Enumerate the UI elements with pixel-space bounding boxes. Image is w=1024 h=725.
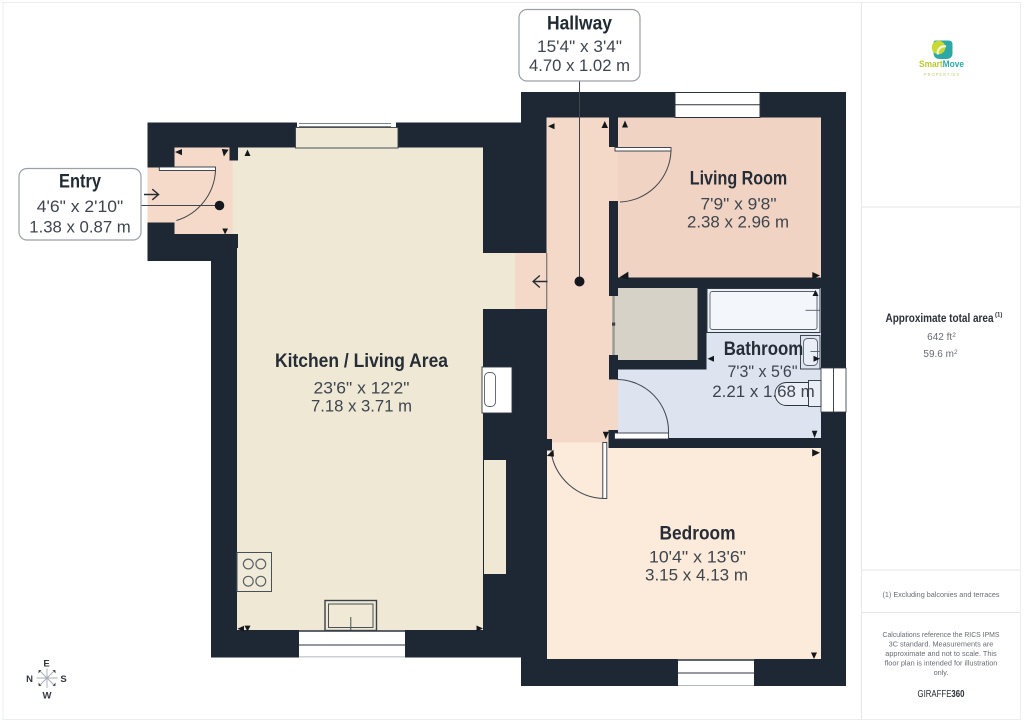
svg-text:7.18 x 3.71 m: 7.18 x 3.71 m: [311, 398, 412, 416]
svg-text:7'3" x 5'6": 7'3" x 5'6": [728, 363, 798, 381]
svg-text:Bathroom: Bathroom: [724, 339, 804, 360]
svg-text:2.21 x 1.68 m: 2.21 x 1.68 m: [712, 383, 815, 401]
svg-text:1.38 x 0.87 m: 1.38 x 0.87 m: [29, 219, 131, 237]
svg-text:only.: only.: [934, 668, 949, 677]
svg-text:3.15 x 4.13 m: 3.15 x 4.13 m: [645, 567, 748, 585]
svg-text:642 ft2: 642 ft2: [927, 332, 956, 344]
svg-text:10'4" x 13'6": 10'4" x 13'6": [649, 549, 746, 567]
svg-text:2.38 x 2.96 m: 2.38 x 2.96 m: [687, 214, 789, 232]
svg-text:Hallway: Hallway: [547, 14, 612, 35]
svg-text:SmartMove: SmartMove: [919, 59, 964, 69]
svg-text:Kitchen / Living Area: Kitchen / Living Area: [275, 351, 448, 372]
svg-text:S: S: [60, 674, 66, 685]
svg-text:floor plan is intended for ill: floor plan is intended for illustration: [885, 659, 998, 668]
svg-text:4'6" x 2'10": 4'6" x 2'10": [37, 198, 124, 216]
svg-text:Entry: Entry: [59, 172, 101, 193]
svg-text:Bedroom: Bedroom: [660, 524, 736, 545]
svg-text:GIRAFFE360: GIRAFFE360: [918, 689, 965, 700]
svg-text:P R O P E R T I E S: P R O P E R T I E S: [924, 72, 959, 77]
svg-text:15'4" x 3'4": 15'4" x 3'4": [537, 38, 622, 56]
svg-text:Living Room: Living Room: [690, 169, 788, 190]
svg-text:N: N: [26, 674, 33, 685]
svg-text:4.70 x 1.02 m: 4.70 x 1.02 m: [529, 57, 630, 75]
svg-text:3C standard. Measurements are: 3C standard. Measurements are: [889, 640, 994, 649]
svg-text:(1) Excluding balconies and te: (1) Excluding balconies and terraces: [883, 590, 1000, 599]
svg-text:W: W: [43, 691, 52, 702]
svg-text:23'6" x 12'2": 23'6" x 12'2": [314, 380, 410, 398]
svg-text:59.6 m2: 59.6 m2: [923, 349, 958, 361]
svg-text:E: E: [43, 659, 49, 670]
svg-text:approximate and not to scale.: approximate and not to scale. This: [885, 649, 997, 658]
svg-text:Calculations reference the RIC: Calculations reference the RICS IPMS: [883, 630, 1000, 639]
svg-text:Approximate total area: Approximate total area: [886, 313, 995, 325]
svg-text:7'9" x 9'8": 7'9" x 9'8": [701, 196, 777, 214]
svg-text:(1): (1): [995, 313, 1002, 319]
